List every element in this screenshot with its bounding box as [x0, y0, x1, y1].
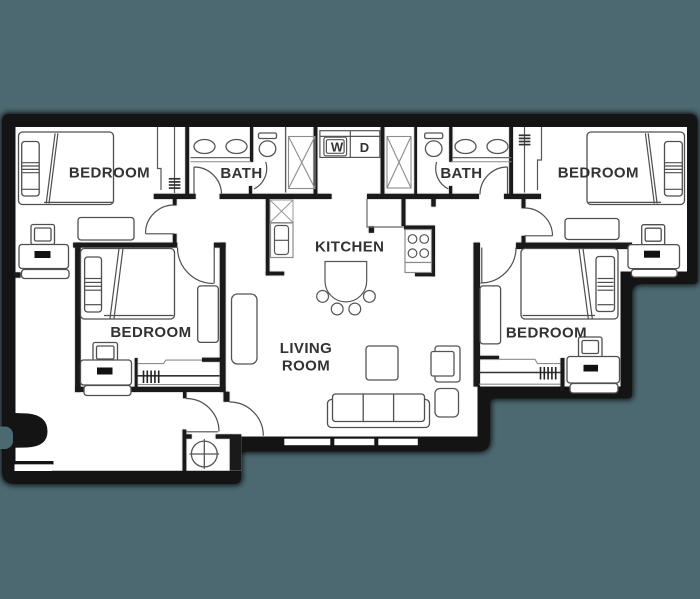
svg-text:BEDROOM: BEDROOM	[110, 324, 191, 341]
svg-text:BEDROOM: BEDROOM	[506, 324, 587, 341]
svg-text:BEDROOM: BEDROOM	[69, 164, 150, 181]
svg-text:D: D	[360, 140, 369, 155]
svg-text:LIVING: LIVING	[280, 340, 332, 357]
svg-text:KITCHEN: KITCHEN	[315, 238, 384, 255]
svg-text:W: W	[331, 140, 344, 155]
svg-text:BATH: BATH	[440, 165, 482, 182]
svg-text:BEDROOM: BEDROOM	[558, 164, 639, 181]
svg-text:ROOM: ROOM	[282, 357, 330, 374]
svg-text:BATH: BATH	[220, 165, 262, 182]
